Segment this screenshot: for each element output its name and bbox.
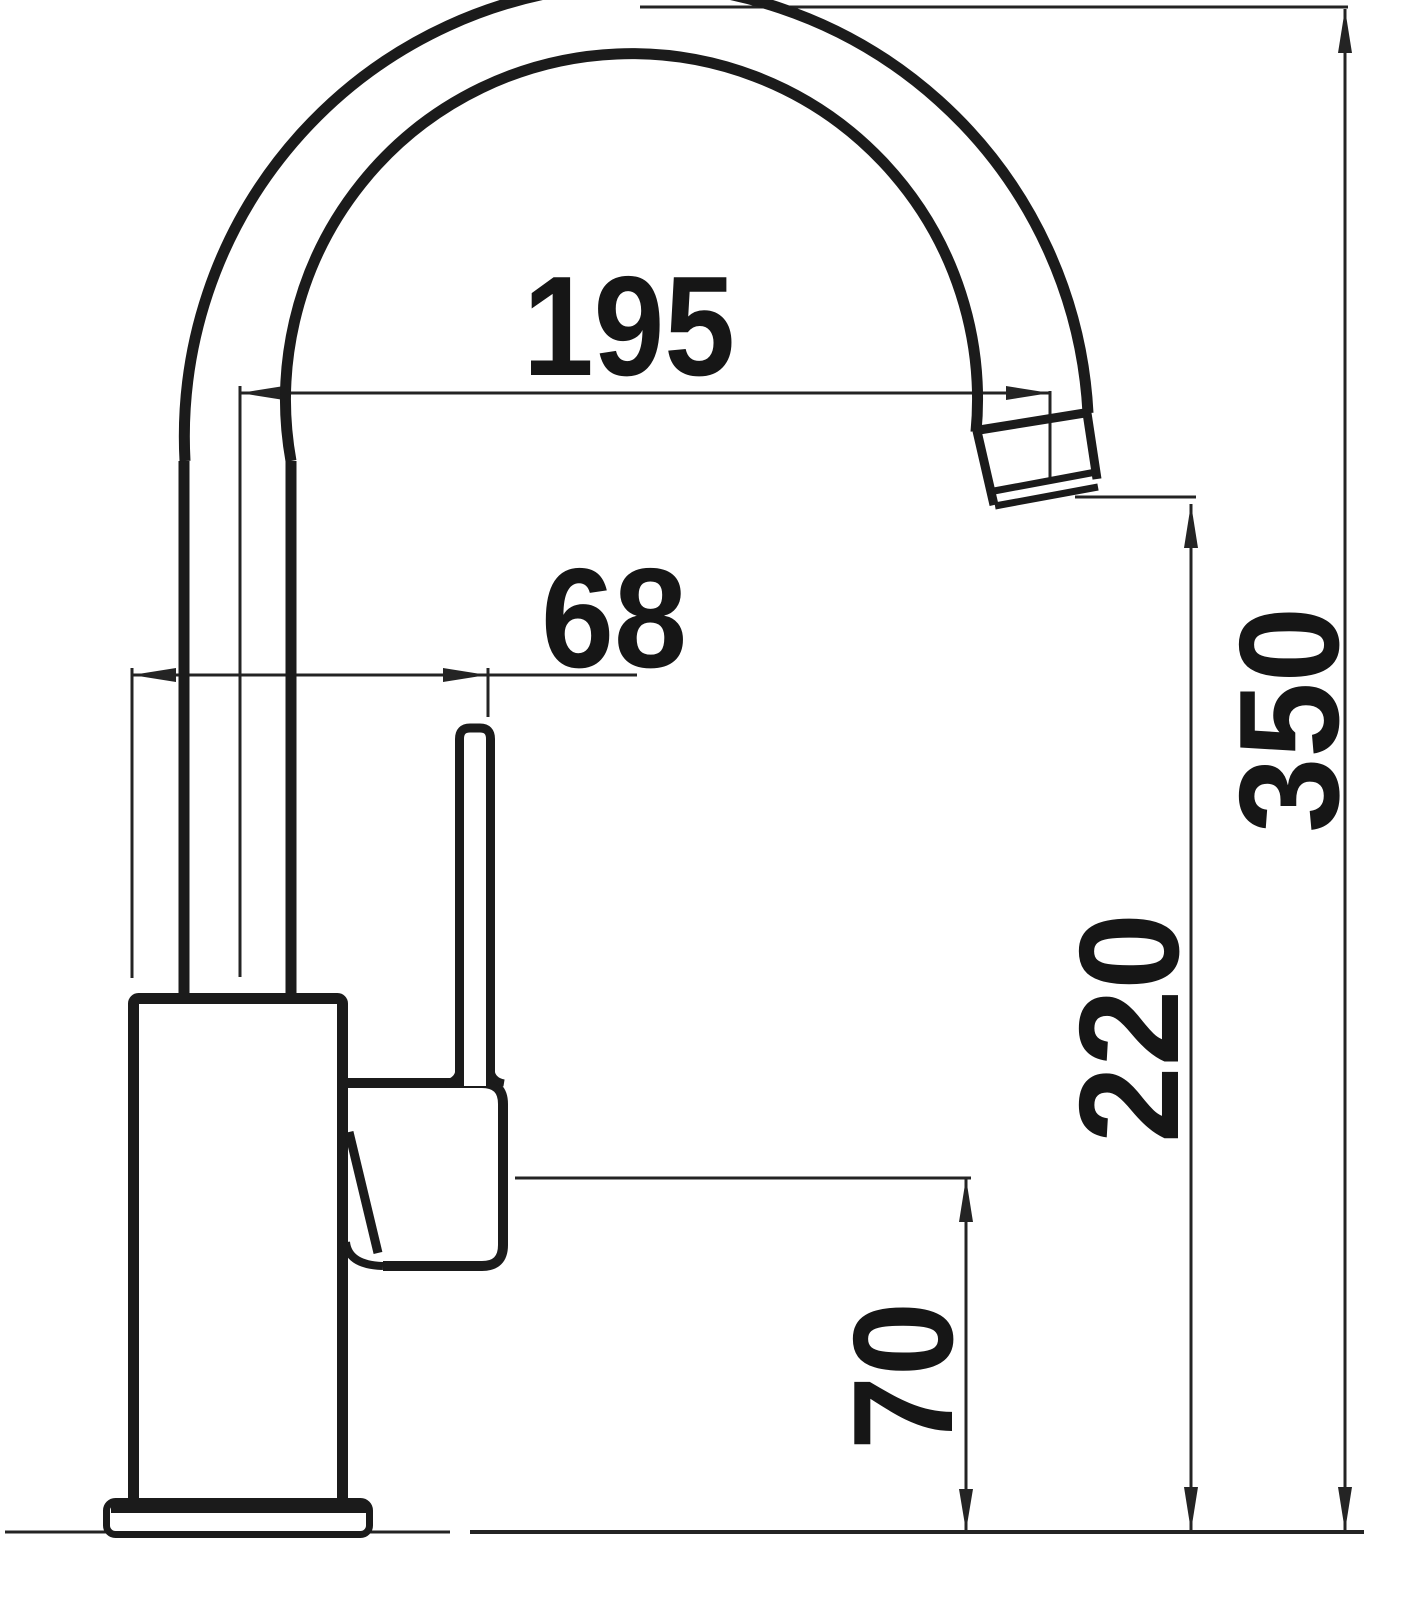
faucet-body <box>134 999 343 1504</box>
lever-rod <box>460 728 491 1086</box>
drawing-canvas: 195 68 350 220 70 <box>0 0 1403 1600</box>
faucet-dimension-drawing: 195 68 350 220 70 <box>0 0 1403 1600</box>
arrowhead-bottom <box>959 1489 973 1531</box>
lever-fillet-left <box>446 1070 459 1083</box>
arrowhead-right <box>443 668 487 682</box>
arrowhead-left <box>240 386 284 400</box>
dimension-base-height: 70 <box>824 1178 983 1531</box>
dimension-label-outlet-height: 220 <box>1050 913 1209 1143</box>
dimension-overall-height: 350 <box>1210 9 1369 1531</box>
arrowhead-top <box>1338 9 1352 53</box>
arrowhead-bottom <box>1338 1487 1352 1531</box>
dimension-label-overall-height: 350 <box>1210 607 1369 833</box>
lever-fillet-right <box>491 1070 504 1083</box>
arrowhead-bottom <box>1184 1487 1198 1531</box>
arrowhead-top <box>959 1178 973 1222</box>
arrowhead-left <box>132 668 176 682</box>
dimension-label-handle-offset: 68 <box>541 539 687 698</box>
dimension-handle-offset: 68 <box>132 539 687 698</box>
nozzle-left-edge <box>977 431 994 505</box>
dimension-label-base-height: 70 <box>824 1302 983 1450</box>
arrowhead-right <box>1006 386 1050 400</box>
nozzle-right-edge <box>1087 413 1097 479</box>
arrowhead-top <box>1184 504 1198 548</box>
dimension-outlet-height: 220 <box>1050 504 1209 1531</box>
dimension-label-spout-reach: 195 <box>523 247 735 406</box>
dimension-spout-reach: 195 <box>240 247 1050 406</box>
nozzle-joint-line <box>973 412 1091 431</box>
